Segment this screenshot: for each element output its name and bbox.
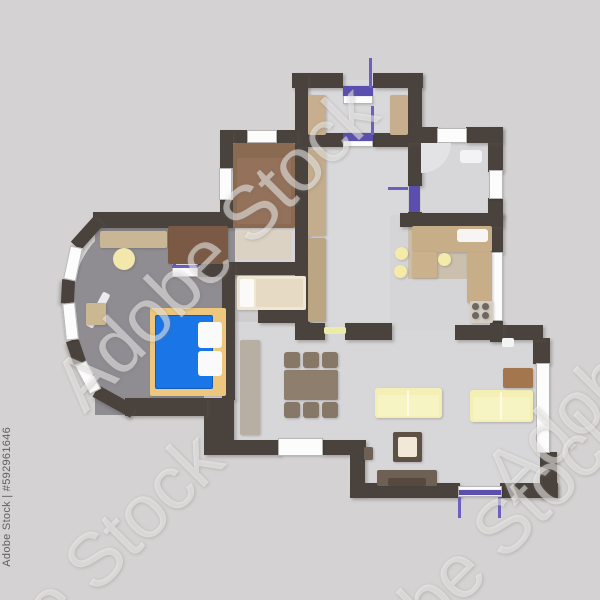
niche-daybed-blanket bbox=[256, 279, 303, 307]
vestibule-door-swing bbox=[371, 106, 374, 135]
closet-wardrobe bbox=[168, 226, 228, 264]
master-lamp bbox=[113, 248, 135, 270]
bedroom2-top-window bbox=[247, 130, 277, 143]
dining-chair-5 bbox=[303, 402, 319, 418]
master-door-swing-h bbox=[172, 265, 200, 268]
bathroom-door bbox=[409, 186, 420, 212]
vestibule-closet-right bbox=[390, 95, 408, 135]
patio-door-swing-left bbox=[458, 497, 461, 518]
vestibule-door-threshold bbox=[343, 140, 373, 147]
wall-master-bottom bbox=[125, 398, 207, 416]
wall-bath-top-right bbox=[466, 127, 502, 143]
wall-niche-bottom bbox=[258, 310, 310, 323]
dining-bottom-window bbox=[278, 438, 323, 456]
wall-bath-top-left bbox=[408, 127, 438, 143]
wall-dining-left-corner bbox=[204, 398, 234, 442]
bar-stool-3 bbox=[438, 253, 451, 266]
stock-id-watermark: Adobe Stock | #592961646 bbox=[1, 427, 13, 567]
master-bed-pillow-2 bbox=[198, 351, 222, 376]
wall-right-lower bbox=[540, 452, 557, 498]
kitchen-counter-right bbox=[467, 252, 492, 303]
hall-wardrobe-upper bbox=[308, 150, 326, 236]
niche-daybed-pillow bbox=[240, 279, 254, 307]
bedroom2-rug bbox=[236, 230, 292, 260]
bar-stool-1 bbox=[395, 247, 408, 260]
wall-bay-seg2 bbox=[61, 279, 75, 304]
wall-hall-bottom-right bbox=[345, 323, 392, 340]
sofa-center-split bbox=[407, 390, 409, 416]
stove-burner-2 bbox=[482, 303, 489, 310]
console-table bbox=[503, 368, 533, 388]
wall-hall-bottom-left bbox=[295, 323, 325, 340]
dining-chair-6 bbox=[322, 402, 338, 418]
kitchen-sink bbox=[457, 229, 488, 242]
master-side-table bbox=[86, 303, 106, 325]
tv-screen bbox=[388, 478, 426, 486]
bathroom-door-swing bbox=[388, 187, 408, 190]
hall-wardrobe-lower bbox=[308, 238, 326, 322]
wall-vestibule-right bbox=[373, 133, 408, 147]
living-right-window bbox=[536, 363, 550, 453]
dining-chair-1 bbox=[284, 352, 300, 368]
dining-chair-4 bbox=[284, 402, 300, 418]
window-shelf bbox=[502, 338, 514, 347]
stove-burner-4 bbox=[482, 312, 489, 319]
bedroom2-left-window bbox=[219, 168, 232, 200]
wall-bed2-left-upper bbox=[220, 130, 233, 168]
floor-plan-image: Adobe StockAdobe StockAdobe StockAdobe S… bbox=[0, 0, 600, 600]
patio-door bbox=[459, 490, 501, 495]
patio-door-swing-right bbox=[498, 497, 501, 518]
kitchen-peninsula bbox=[412, 252, 437, 278]
bathroom-sink bbox=[460, 150, 482, 163]
dining-table bbox=[284, 370, 338, 400]
bathroom-top-window bbox=[437, 128, 467, 143]
dining-chair-2 bbox=[303, 352, 319, 368]
stove-burner-3 bbox=[472, 312, 479, 319]
hall-threshold-yellow bbox=[324, 327, 346, 334]
wall-vestibule-left bbox=[295, 133, 343, 147]
wall-bed2-bottom bbox=[228, 262, 308, 275]
bathroom-right-window bbox=[489, 170, 503, 199]
wall-bath-bottom bbox=[400, 213, 503, 227]
dining-chair-3 bbox=[322, 352, 338, 368]
entry-door-threshold bbox=[343, 95, 373, 104]
coffee-table-top bbox=[398, 437, 417, 457]
master-bed-pillow-1 bbox=[198, 322, 222, 348]
entry-door-swing bbox=[369, 58, 372, 88]
vestibule-closet-left bbox=[308, 95, 326, 135]
dining-sideboard bbox=[240, 340, 260, 435]
master-dresser bbox=[100, 231, 167, 248]
speaker bbox=[364, 447, 373, 460]
stove-burner-1 bbox=[472, 303, 479, 310]
vestibule-door bbox=[343, 133, 373, 141]
wall-dining-bottom-left bbox=[204, 440, 280, 455]
wall-bed2-top-right bbox=[277, 130, 297, 143]
bedroom2-bed-blanket bbox=[237, 158, 291, 224]
bar-stool-2 bbox=[394, 265, 407, 278]
sofa-right-split bbox=[500, 392, 502, 420]
wall-right-upper bbox=[533, 338, 550, 364]
